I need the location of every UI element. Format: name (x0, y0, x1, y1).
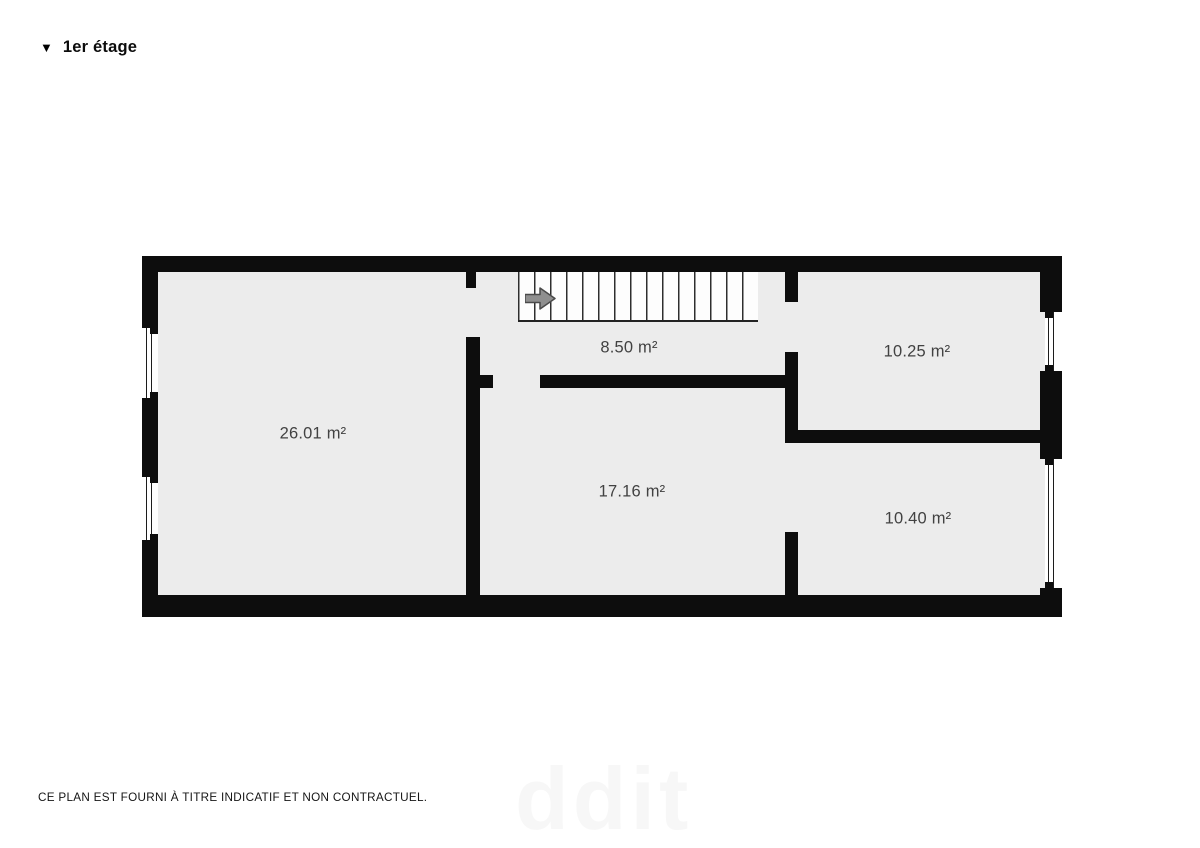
room-area-label: 10.40 m² (885, 510, 952, 529)
window (1045, 312, 1062, 371)
wall-segment (540, 375, 798, 388)
floor-title: 1er étage (63, 38, 137, 57)
window-glass (1048, 459, 1054, 588)
plan-disclaimer: CE PLAN EST FOURNI À TITRE INDICATIF ET … (38, 791, 427, 804)
wall-segment (142, 398, 158, 477)
triangle-down-icon: ▼ (40, 41, 53, 54)
room-area-label: 10.25 m² (884, 343, 951, 362)
window-glass (146, 328, 152, 398)
room-area-label: 26.01 m² (280, 425, 347, 444)
window-glass (146, 477, 152, 540)
wall-segment (142, 595, 1062, 617)
watermark-text: ddit (515, 748, 692, 848)
floor-plan-drawing: 26.01 m² 8.50 m² 10.25 m² 17.16 m² 10.40… (142, 256, 1062, 617)
wall-segment (785, 430, 1045, 443)
wall-segment (142, 256, 1062, 272)
wall-segment (466, 337, 480, 595)
room-area-label: 17.16 m² (599, 483, 666, 502)
wall-segment (142, 540, 158, 595)
wall-segment (785, 272, 798, 302)
floor-section-header[interactable]: ▼ 1er étage (40, 38, 137, 57)
floor-plan-page: ▼ 1er étage ddit (0, 0, 1200, 848)
window (1045, 459, 1062, 588)
hallway-stairs (480, 272, 785, 375)
window-glass (1048, 312, 1054, 371)
window (142, 328, 158, 398)
wall-segment (785, 532, 798, 595)
wall-segment (480, 375, 493, 388)
room-area-label: 8.50 m² (600, 339, 657, 358)
wall-segment (466, 272, 476, 288)
window (142, 477, 158, 540)
wall-segment (142, 272, 158, 328)
